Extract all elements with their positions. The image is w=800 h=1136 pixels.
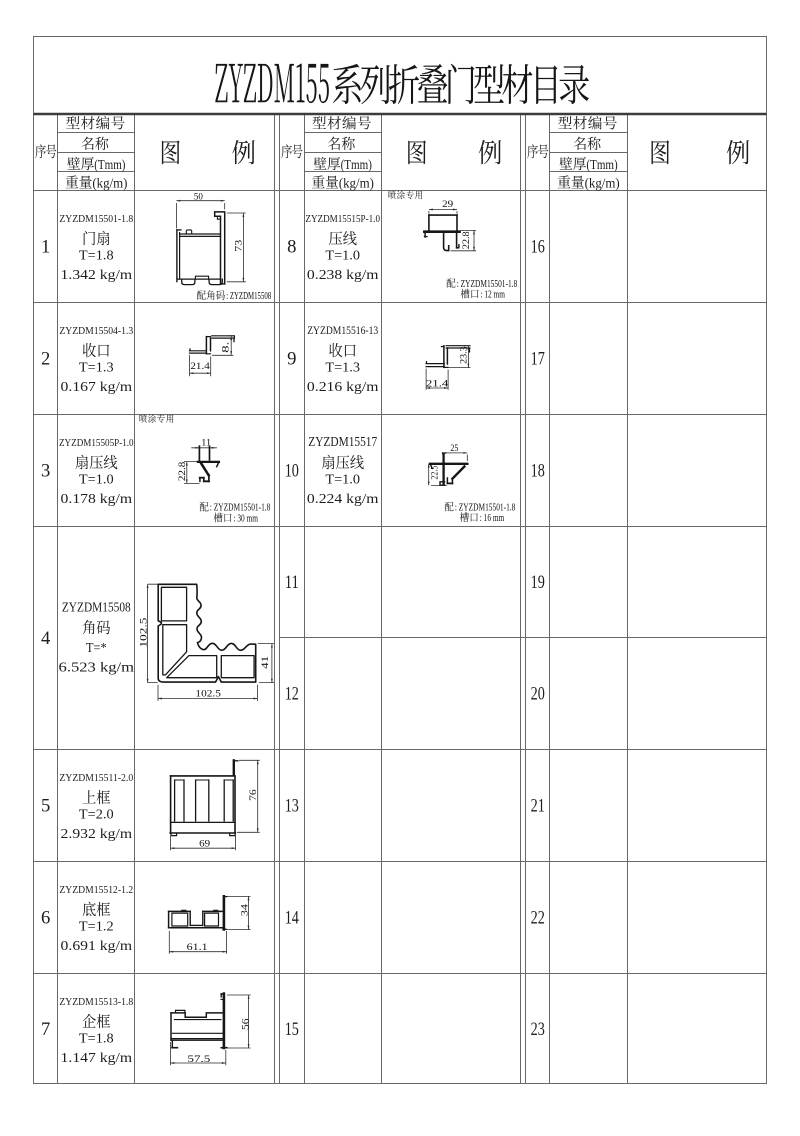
svg-text:19: 19	[531, 572, 545, 593]
svg-text:(Tmm): (Tmm)	[341, 157, 372, 172]
svg-text:ZYZDM15501-1.8: ZYZDM15501-1.8	[59, 213, 133, 225]
svg-text:0.691 kg/m: 0.691 kg/m	[61, 938, 133, 953]
svg-text:ZYZDM15508: ZYZDM15508	[62, 600, 131, 615]
svg-text:T=*: T=*	[86, 640, 107, 655]
svg-text:29: 29	[442, 199, 453, 210]
svg-text:76: 76	[248, 789, 259, 801]
svg-text:11: 11	[285, 572, 299, 593]
svg-text:: ZYZDM15508: : ZYZDM15508	[226, 291, 271, 302]
svg-text:: 30 mm: : 30 mm	[233, 513, 258, 524]
svg-text:17: 17	[531, 348, 545, 369]
svg-text:56: 56	[240, 1018, 251, 1030]
svg-text:41: 41	[260, 656, 271, 669]
svg-text:6.523 kg/m: 6.523 kg/m	[59, 659, 135, 674]
svg-text:23: 23	[531, 1019, 545, 1040]
svg-text:13: 13	[285, 795, 299, 816]
svg-text:T=1.2: T=1.2	[79, 918, 114, 933]
svg-text:T=1.3: T=1.3	[325, 359, 360, 374]
svg-text:9: 9	[287, 348, 296, 369]
svg-text:(Tmm): (Tmm)	[94, 157, 125, 172]
svg-text:20: 20	[531, 684, 545, 705]
svg-text:ZYZDM15517: ZYZDM15517	[308, 434, 377, 449]
svg-text:(kg/m): (kg/m)	[339, 175, 374, 190]
svg-text:: 12 mm: : 12 mm	[480, 289, 505, 300]
svg-text:T=1.8: T=1.8	[79, 247, 114, 262]
svg-text:T=1.8: T=1.8	[79, 1030, 114, 1045]
svg-text:69: 69	[199, 838, 210, 849]
svg-text:5: 5	[41, 795, 50, 816]
svg-text:6: 6	[41, 907, 50, 928]
svg-text:0.238 kg/m: 0.238 kg/m	[307, 267, 379, 282]
svg-text:0.216 kg/m: 0.216 kg/m	[307, 379, 379, 394]
svg-text:: ZYZDM15501-1.8: : ZYZDM15501-1.8	[455, 502, 515, 513]
svg-text:15: 15	[285, 1019, 299, 1040]
svg-text:ZYZDM15512-1.2: ZYZDM15512-1.2	[59, 884, 133, 896]
svg-text:3: 3	[41, 460, 50, 481]
svg-text:21.4: 21.4	[426, 379, 449, 390]
svg-text:34: 34	[240, 904, 251, 916]
svg-text:4: 4	[41, 628, 50, 649]
svg-text:: ZYZDM15501-1.8: : ZYZDM15501-1.8	[210, 503, 271, 514]
svg-text:14: 14	[285, 907, 299, 928]
svg-text:50: 50	[194, 191, 203, 202]
svg-text:18: 18	[531, 460, 545, 481]
svg-text:102.5: 102.5	[195, 688, 221, 699]
svg-text:T=1.0: T=1.0	[79, 471, 114, 486]
svg-text:ZYZDM15511-2.0: ZYZDM15511-2.0	[59, 772, 133, 784]
svg-text:21.4: 21.4	[190, 361, 210, 372]
svg-text:0.167 kg/m: 0.167 kg/m	[61, 379, 133, 394]
svg-text:0.224 kg/m: 0.224 kg/m	[307, 491, 379, 506]
svg-text:T=1.3: T=1.3	[79, 359, 114, 374]
svg-text:2: 2	[41, 348, 50, 369]
svg-text:16: 16	[531, 236, 545, 257]
svg-text:(kg/m): (kg/m)	[92, 175, 127, 190]
svg-text:22: 22	[531, 907, 545, 928]
svg-text:ZYZDM15516-13: ZYZDM15516-13	[307, 325, 378, 337]
svg-text:ZYZDM15505P-1.0: ZYZDM15505P-1.0	[59, 437, 134, 449]
svg-text:: ZYZDM15501-1.8: : ZYZDM15501-1.8	[457, 279, 518, 290]
svg-text:57.5: 57.5	[187, 1054, 210, 1065]
svg-text:10: 10	[285, 460, 299, 481]
svg-text:2.932 kg/m: 2.932 kg/m	[61, 826, 133, 841]
svg-text:1.147 kg/m: 1.147 kg/m	[61, 1050, 133, 1065]
svg-text:1: 1	[41, 236, 50, 257]
svg-text:22.8: 22.8	[461, 231, 472, 249]
svg-text:ZYZDM15513-1.8: ZYZDM15513-1.8	[59, 996, 133, 1008]
svg-text:T=2.0: T=2.0	[79, 806, 114, 821]
svg-text:(kg/m): (kg/m)	[585, 175, 620, 190]
svg-text:8: 8	[287, 236, 296, 257]
svg-text:1.342 kg/m: 1.342 kg/m	[61, 267, 133, 282]
svg-text:T=1.0: T=1.0	[325, 471, 360, 486]
svg-text:7: 7	[41, 1019, 50, 1040]
svg-text:25: 25	[450, 443, 458, 454]
svg-text:ZYZDM15515P-1.0: ZYZDM15515P-1.0	[305, 213, 380, 225]
svg-text:ZYZDM15504-1.3: ZYZDM15504-1.3	[59, 325, 133, 337]
svg-text:102.5: 102.5	[138, 617, 149, 647]
svg-text:61.1: 61.1	[187, 942, 208, 953]
svg-text:0.178 kg/m: 0.178 kg/m	[61, 491, 133, 506]
svg-text:: 16 mm: : 16 mm	[480, 513, 505, 524]
svg-text:73: 73	[233, 240, 244, 252]
svg-text:T=1.0: T=1.0	[325, 247, 360, 262]
svg-text:22.8: 22.8	[177, 461, 188, 481]
svg-text:8.: 8.	[221, 342, 232, 353]
svg-text:(Tmm): (Tmm)	[586, 157, 617, 172]
svg-text:23.3: 23.3	[459, 346, 470, 364]
svg-text:12: 12	[285, 684, 299, 705]
svg-text:21: 21	[531, 795, 545, 816]
